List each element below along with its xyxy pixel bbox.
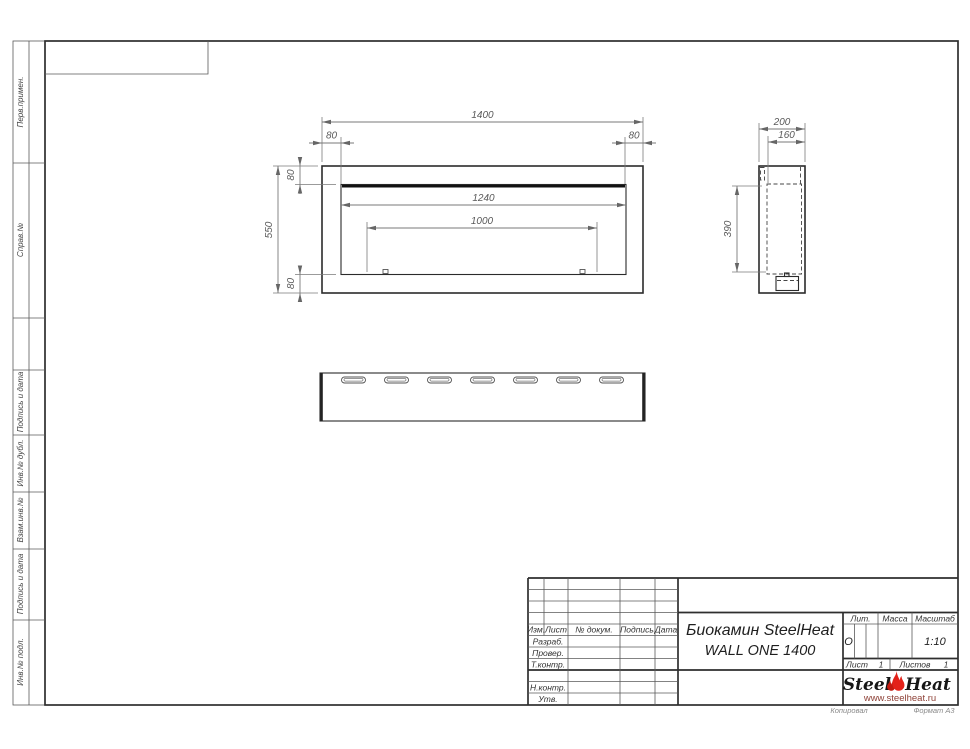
sheet-value: 1	[879, 659, 884, 669]
engineering-drawing: Перв.примен. Справ.№ Подпись и дата Инв.…	[0, 0, 970, 749]
sheets-value: 1	[944, 659, 949, 669]
margin-label-perv-primen: Перв.примен.	[16, 77, 25, 128]
document-name-line2: WALL ONE 1400	[705, 643, 816, 659]
margin-labels: Перв.примен. Справ.№ Подпись и дата Инв.…	[16, 77, 25, 686]
drawing-sheet: Перв.примен. Справ.№ Подпись и дата Инв.…	[0, 0, 970, 749]
burner-slots	[342, 377, 624, 383]
dim-margin-left-80: 80	[326, 131, 338, 142]
row-utv: Утв.	[537, 694, 557, 704]
burner-clip-left	[383, 270, 388, 274]
row-tkontr: Т.контр.	[531, 659, 565, 669]
logo-steel-text: Steel	[843, 675, 892, 695]
margin-label-inv-dubl: Инв.№ дубл.	[16, 440, 25, 487]
lit-label: Лит.	[850, 614, 871, 624]
row-prover: Провер.	[532, 648, 564, 658]
sheets-label: Листов	[899, 659, 932, 669]
document-name-line1: Биокамин SteelHeat	[686, 622, 835, 639]
dim-margin-top-80: 80	[286, 169, 297, 181]
margin-label-podpis-data-1: Подпись и дата	[16, 371, 25, 432]
margin-label-vzam-inv: Взам.инв.№	[16, 497, 25, 542]
bottom-view	[320, 373, 645, 421]
dim-margin-bottom-80: 80	[286, 278, 297, 290]
margin-label-sprav-no: Справ.№	[16, 223, 25, 257]
top-reference-box	[45, 41, 208, 74]
dim-inner-height-390: 390	[723, 220, 734, 237]
scale-value: 1:10	[924, 636, 946, 648]
scale-label: Масштаб	[915, 614, 956, 624]
logo-url: www.steelheat.ru	[863, 693, 936, 704]
lit-value: О	[844, 636, 853, 648]
col-list: Лист	[544, 625, 567, 635]
burner-clip-right	[580, 270, 585, 274]
dim-margin-right-80: 80	[628, 131, 640, 142]
dim-opening-1240: 1240	[472, 193, 495, 204]
sheet-label: Лист	[845, 659, 868, 669]
dim-width-1400: 1400	[471, 110, 494, 121]
dim-depth-200: 200	[773, 117, 791, 128]
col-doc: № докум.	[575, 625, 612, 635]
logo-heat-text: Heat	[904, 675, 951, 695]
dim-inner-depth-160: 160	[778, 130, 795, 141]
format-label: Формат А3	[913, 706, 955, 715]
copied-label: Копировал	[830, 706, 868, 715]
mass-label: Масса	[882, 614, 907, 624]
margin-label-podpis-data-2: Подпись и дата	[16, 553, 25, 614]
dim-height-550: 550	[264, 221, 275, 238]
row-razrab: Разраб.	[533, 637, 564, 647]
side-view	[759, 166, 805, 293]
footer-labels: Копировал Формат А3	[830, 706, 955, 715]
col-izm: Изм.	[527, 625, 545, 635]
margin-label-inv-podl: Инв.№ подл.	[16, 638, 25, 685]
steelheat-logo: Steel Heat www.steelheat.ru	[843, 671, 951, 704]
col-date: Дата	[654, 625, 678, 635]
col-sign: Подпись	[620, 625, 654, 635]
dim-burner-1000: 1000	[471, 216, 494, 227]
row-nkontr: Н.контр.	[530, 682, 566, 692]
front-view	[322, 166, 643, 293]
